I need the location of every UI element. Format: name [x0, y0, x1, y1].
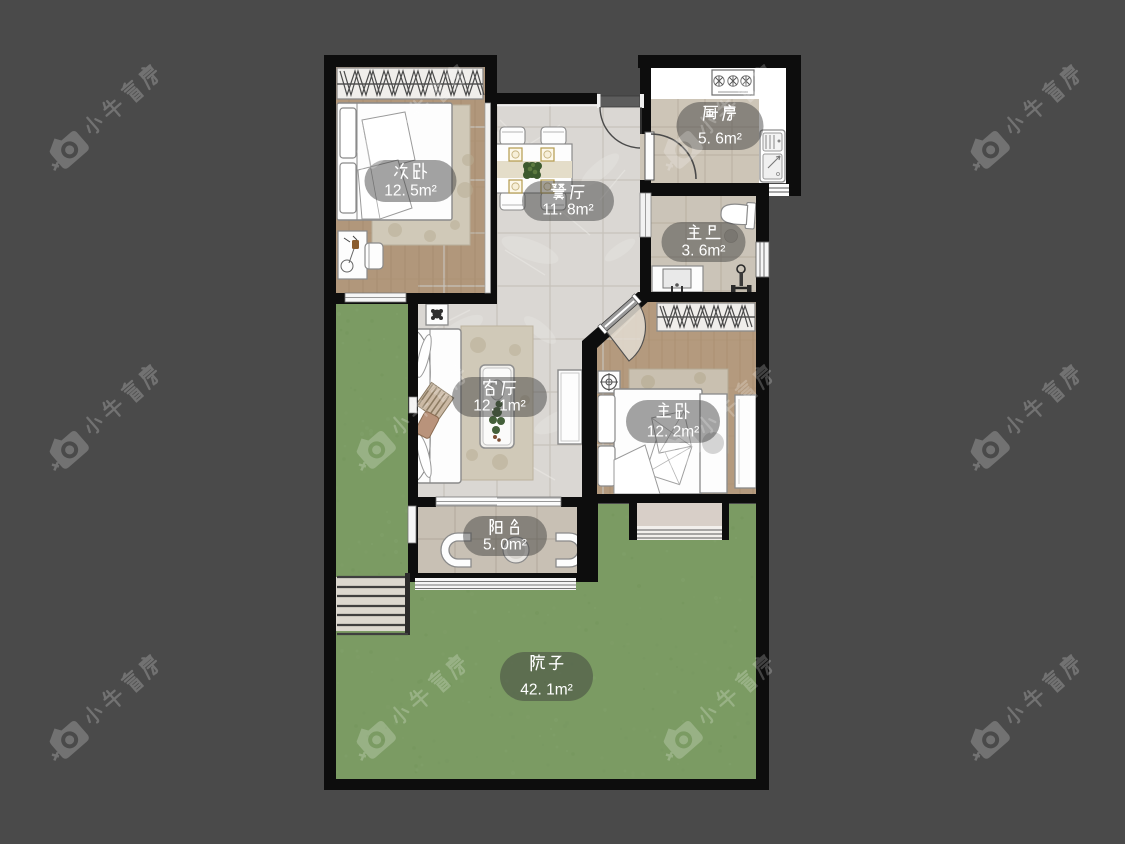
svg-text:12. 1m²: 12. 1m² [473, 398, 526, 415]
svg-text:11. 8m²: 11. 8m² [542, 202, 593, 219]
svg-text:12. 5m²: 12. 5m² [384, 183, 437, 200]
svg-text:5. 0m²: 5. 0m² [483, 537, 527, 554]
svg-text:3. 6m²: 3. 6m² [682, 243, 726, 260]
svg-text:42. 1m²: 42. 1m² [520, 682, 573, 699]
svg-text:5. 6m²: 5. 6m² [698, 131, 742, 148]
